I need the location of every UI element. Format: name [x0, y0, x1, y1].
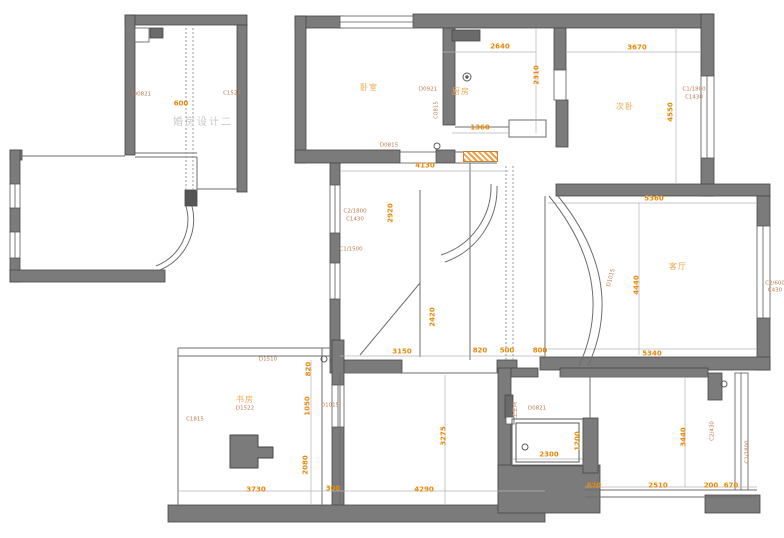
dimension-label-29: 600 — [174, 101, 189, 108]
closet-block — [150, 28, 163, 38]
wall — [701, 14, 714, 76]
door-arc — [441, 184, 491, 255]
dimension-label-4: 1360 — [470, 125, 489, 132]
curved-wall — [558, 196, 602, 366]
drain-icon — [522, 444, 528, 450]
door-arc — [156, 206, 188, 266]
floor-plan-drawing — [0, 0, 784, 538]
door-arcs — [156, 184, 602, 366]
wall — [10, 150, 20, 184]
wall — [556, 100, 568, 147]
dimension-label-20: 4290 — [414, 487, 433, 494]
closet — [135, 28, 149, 42]
wall — [511, 368, 538, 377]
dimension-label-1: 2310 — [534, 65, 541, 84]
marker-circle — [434, 143, 440, 149]
dimension-label-12: 500 — [500, 348, 515, 355]
dimension-label-19: 300 — [326, 486, 341, 493]
dimension-label-22: 2300 — [539, 452, 558, 459]
wall — [10, 270, 165, 282]
dimension-label-25: 2510 — [648, 483, 667, 490]
wall — [295, 150, 400, 163]
wall — [705, 495, 760, 513]
window — [757, 226, 770, 318]
code-label-39: C1430 — [685, 95, 703, 101]
wall — [237, 25, 247, 192]
room-label-50: 卧室 — [360, 84, 378, 92]
code-label-38: C1/1800 — [682, 87, 705, 93]
floor-plan: 2640231036704550136041302920536044405340… — [0, 0, 784, 538]
wall — [443, 28, 455, 125]
threshold-hatch — [463, 151, 498, 162]
dimension-label-21: 3275 — [441, 426, 448, 445]
door-jamb — [185, 190, 197, 206]
code-label-33: C0815 — [434, 101, 440, 119]
wall — [332, 340, 344, 385]
window — [735, 373, 748, 490]
dimension-label-28: 3440 — [681, 427, 688, 446]
column-block — [230, 435, 273, 468]
wall — [757, 196, 770, 226]
dimension-label-2: 3670 — [627, 45, 646, 52]
dimension-label-11: 820 — [473, 348, 488, 355]
dashed-lines — [186, 28, 513, 362]
wall — [708, 373, 722, 400]
door-opening — [554, 70, 566, 100]
thin-lines — [22, 120, 757, 505]
room-label-51: 厨房 — [452, 88, 470, 96]
dimension-label-26: 200 — [704, 483, 719, 490]
code-label-41: C2/600 — [765, 281, 784, 287]
kitchen-cabinet — [452, 30, 480, 41]
dimension-label-14: 2420 — [430, 307, 437, 326]
dimension-label-3: 4550 — [668, 102, 675, 121]
door-arc — [160, 206, 194, 270]
room-label-54: 书房 — [236, 396, 254, 404]
code-label-55: 卫生间 — [513, 402, 519, 419]
dimension-label-24: 620 — [587, 483, 602, 490]
dimension-label-6: 2920 — [388, 203, 395, 222]
dimension-label-10: 3150 — [392, 349, 411, 356]
wall — [168, 505, 545, 522]
code-label-36: C1430 — [346, 217, 364, 223]
wall — [125, 15, 247, 25]
wall — [554, 28, 566, 70]
room-label-52: 次卧 — [616, 103, 634, 111]
dimension-label-17: 2080 — [303, 455, 310, 474]
dimension-label-27: 670 — [724, 483, 739, 490]
code-label-47: D0821 — [528, 406, 546, 412]
wall — [125, 15, 135, 155]
dimension-label-18: 3730 — [246, 487, 265, 494]
code-label-34: D0815 — [380, 143, 398, 149]
dimension-label-7: 5360 — [644, 196, 663, 203]
code-label-37: C1/1500 — [339, 247, 362, 253]
code-label-32: D0921 — [419, 87, 437, 93]
code-label-48: C2/430 — [710, 421, 716, 441]
room-label-53: 客厅 — [669, 263, 687, 271]
wall — [10, 208, 20, 232]
dimension-label-5: 4130 — [415, 163, 434, 170]
wall — [583, 418, 598, 473]
dimension-label-16: 1050 — [305, 396, 312, 415]
wall — [295, 16, 306, 163]
wall — [436, 150, 455, 163]
code-label-45: C1815 — [186, 417, 204, 423]
dimension-label-23: 1200 — [575, 431, 582, 450]
code-label-35: C2/1800 — [343, 209, 366, 215]
wall — [560, 368, 708, 377]
dimension-label-0: 2640 — [490, 44, 509, 51]
wall — [332, 427, 344, 507]
dimension-label-8: 4440 — [634, 275, 641, 294]
code-label-42: C430 — [768, 288, 782, 294]
walls — [10, 14, 770, 522]
dimension-label-9: 5340 — [642, 351, 661, 358]
code-label-44: D1510 — [259, 357, 277, 363]
code-label-43: D1015 — [321, 403, 339, 409]
watermark-56: 婚房设计二 — [173, 118, 233, 128]
code-label-31: C1524 — [223, 91, 241, 97]
curved-wall — [549, 196, 593, 366]
code-label-49: C1/1800 — [745, 440, 751, 463]
code-label-30: D0821 — [133, 92, 151, 98]
wall — [330, 163, 340, 185]
code-label-46: D1522 — [236, 406, 254, 412]
dimension-label-13: 800 — [533, 348, 548, 355]
wall — [413, 14, 713, 28]
dimension-label-15: 820 — [306, 362, 313, 377]
windows — [10, 16, 770, 490]
